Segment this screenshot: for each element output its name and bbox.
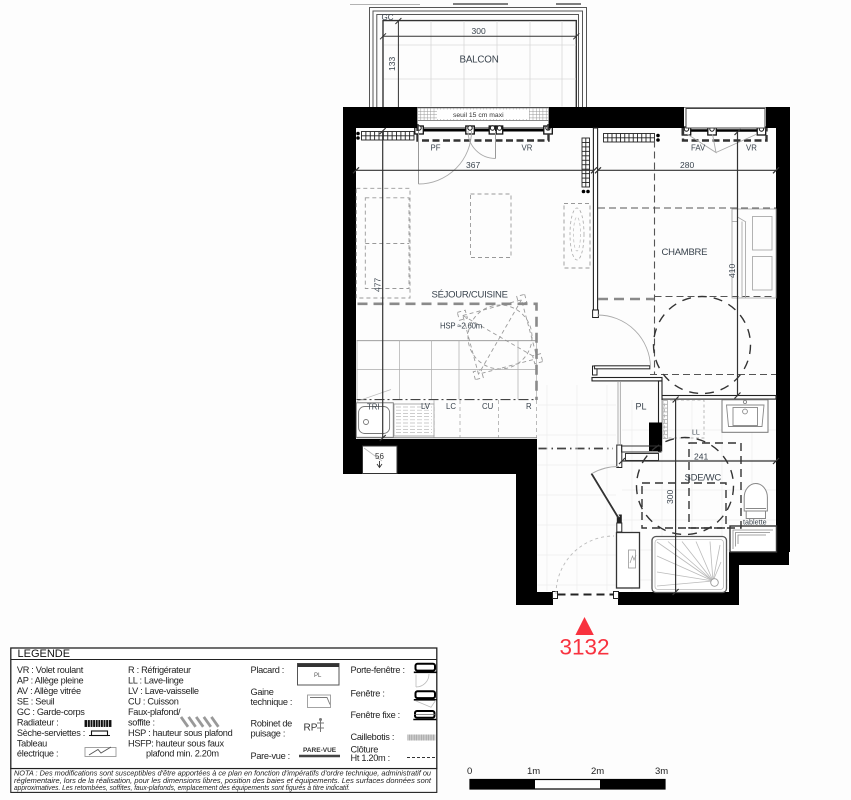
svg-text:300: 300 <box>665 490 675 504</box>
svg-text:PARE-VUE: PARE-VUE <box>303 747 337 754</box>
svg-text:seuil 15 cm maxi: seuil 15 cm maxi <box>453 112 504 119</box>
svg-text:GC : Garde-corps: GC : Garde-corps <box>17 707 85 717</box>
svg-text:réglementaire, lors de la réal: réglementaire, lors de la réalisation, p… <box>14 778 432 785</box>
svg-text:VR: VR <box>522 144 533 153</box>
svg-text:CU : Cuisson: CU : Cuisson <box>128 697 179 707</box>
svg-text:RP: RP <box>304 723 318 734</box>
svg-text:367: 367 <box>466 160 480 170</box>
svg-text:56: 56 <box>375 452 384 461</box>
svg-text:300: 300 <box>472 26 486 36</box>
svg-text:PL: PL <box>314 673 322 679</box>
svg-text:approximatives. Les retombées,: approximatives. Les retombées, soffites,… <box>14 785 350 792</box>
svg-text:LL: LL <box>692 430 700 437</box>
svg-text:PL: PL <box>636 402 647 412</box>
svg-text:280: 280 <box>680 160 694 170</box>
svg-text:PF: PF <box>431 144 441 153</box>
svg-text:R : Réfrigérateur: R : Réfrigérateur <box>128 665 191 675</box>
svg-text:puisage :: puisage : <box>251 729 286 739</box>
svg-text:CU: CU <box>482 402 494 411</box>
svg-text:R: R <box>526 402 532 411</box>
svg-text:SDE/WC: SDE/WC <box>685 473 722 484</box>
svg-text:électrique :: électrique : <box>17 749 58 759</box>
svg-text:LEGENDE: LEGENDE <box>18 648 71 660</box>
svg-text:SE : Seuil: SE : Seuil <box>17 697 55 707</box>
svg-text:technique :: technique : <box>251 697 293 707</box>
svg-text:2m: 2m <box>591 766 604 777</box>
svg-text:LC: LC <box>446 402 456 411</box>
svg-text:Placard :: Placard : <box>251 665 285 675</box>
svg-text:BALCON: BALCON <box>460 55 499 66</box>
svg-text:477: 477 <box>373 278 383 292</box>
svg-text:Porte-fenêtre :: Porte-fenêtre : <box>351 665 405 675</box>
svg-text:plafond min. 2.20m: plafond min. 2.20m <box>128 749 219 759</box>
svg-text:3132: 3132 <box>560 635 610 660</box>
svg-text:LV: LV <box>421 402 431 411</box>
svg-text:Fenêtre fixe :: Fenêtre fixe : <box>351 710 400 720</box>
svg-text:Gaine: Gaine <box>251 687 274 697</box>
svg-text:Sèche-serviettes :: Sèche-serviettes : <box>17 728 85 738</box>
svg-text:Radiateur :: Radiateur : <box>17 718 59 728</box>
svg-text:VR: VR <box>746 144 757 153</box>
svg-text:SÉJOUR/CUISINE: SÉJOUR/CUISINE <box>432 290 508 301</box>
svg-text:410: 410 <box>727 264 737 278</box>
svg-text:HSP : hauteur sous plafond: HSP : hauteur sous plafond <box>128 728 233 738</box>
svg-text:133: 133 <box>387 57 397 71</box>
svg-text:soffite :: soffite : <box>128 718 155 728</box>
svg-text:VR : Volet roulant: VR : Volet roulant <box>17 665 84 675</box>
svg-text:AV : Allège vitrée: AV : Allège vitrée <box>17 686 81 696</box>
svg-text:AP : Allège pleine: AP : Allège pleine <box>17 676 84 686</box>
svg-text:Caillebotis :: Caillebotis : <box>351 732 395 742</box>
svg-text:Faux-plafond/: Faux-plafond/ <box>128 707 181 717</box>
svg-text:Tableau: Tableau <box>17 739 47 749</box>
svg-text:1m: 1m <box>527 766 540 777</box>
svg-text:GC: GC <box>382 13 394 22</box>
svg-text:NOTA : Des modifications sont: NOTA : Des modifications sont susceptibl… <box>14 771 431 778</box>
svg-text:0: 0 <box>467 766 472 777</box>
svg-text:HSFP: hauteur sous faux: HSFP: hauteur sous faux <box>128 739 224 749</box>
svg-text:3m: 3m <box>655 766 668 777</box>
svg-text:HSP ≈2.60m: HSP ≈2.60m <box>440 322 482 331</box>
svg-text:Ht 1.20m :: Ht 1.20m : <box>351 753 390 763</box>
svg-text:LV : Lave-vaisselle: LV : Lave-vaisselle <box>128 686 199 696</box>
svg-text:FAV: FAV <box>691 144 706 153</box>
svg-text:Robinet de: Robinet de <box>251 719 293 729</box>
svg-text:Fenêtre :: Fenêtre : <box>351 689 385 699</box>
svg-text:CHAMBRE: CHAMBRE <box>662 247 708 258</box>
svg-text:TRI: TRI <box>367 403 380 412</box>
svg-text:LL : Lave-linge: LL : Lave-linge <box>128 676 184 686</box>
svg-text:Pare-vue :: Pare-vue : <box>251 751 290 761</box>
svg-text:241: 241 <box>694 452 708 462</box>
svg-text:tablette: tablette <box>743 518 767 527</box>
